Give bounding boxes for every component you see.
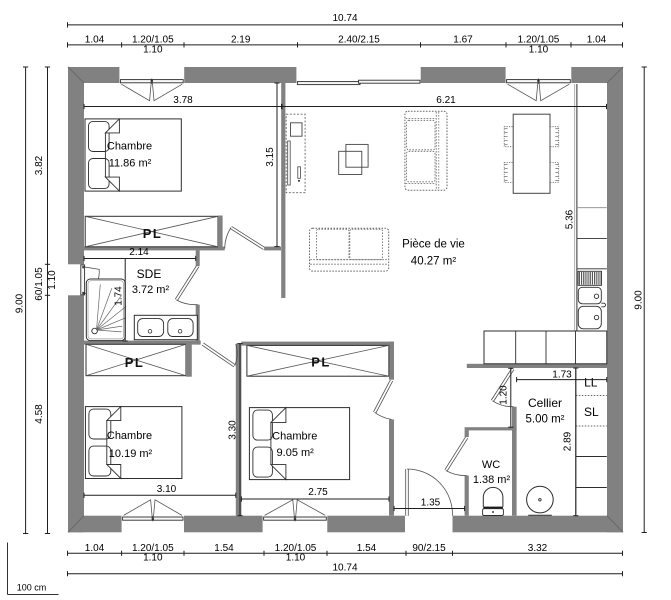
svg-text:2.89: 2.89 <box>563 431 574 451</box>
svg-text:3.82: 3.82 <box>34 155 45 175</box>
svg-text:1.10: 1.10 <box>143 44 163 55</box>
svg-text:4.58: 4.58 <box>34 404 45 424</box>
svg-text:1.54: 1.54 <box>214 543 234 554</box>
svg-text:2.14: 2.14 <box>129 247 149 258</box>
svg-text:1.74: 1.74 <box>113 286 124 306</box>
svg-text:1.20: 1.20 <box>499 385 510 405</box>
svg-text:6.21: 6.21 <box>436 95 456 106</box>
svg-text:100 cm: 100 cm <box>17 583 47 593</box>
svg-text:1.04: 1.04 <box>85 35 105 46</box>
svg-text:Chambre: Chambre <box>107 141 152 153</box>
svg-text:Cellier: Cellier <box>528 396 562 410</box>
svg-text:11.86 m²: 11.86 m² <box>109 157 152 169</box>
svg-text:5.36: 5.36 <box>565 209 576 229</box>
svg-text:1.04: 1.04 <box>587 35 607 46</box>
svg-text:60/1.05: 60/1.05 <box>34 267 45 301</box>
svg-text:1.10: 1.10 <box>47 270 58 290</box>
svg-text:Chambre: Chambre <box>272 431 317 443</box>
svg-text:2.40/2.15: 2.40/2.15 <box>338 35 380 46</box>
svg-text:LL: LL <box>584 375 598 389</box>
svg-text:9.00: 9.00 <box>15 293 26 313</box>
svg-text:1.10: 1.10 <box>286 553 306 564</box>
svg-text:10.74: 10.74 <box>332 563 357 574</box>
svg-text:1.04: 1.04 <box>85 543 105 554</box>
svg-text:1.67: 1.67 <box>453 35 473 46</box>
svg-text:5.00 m²: 5.00 m² <box>526 414 565 426</box>
svg-text:Pièce de vie: Pièce de vie <box>402 239 465 251</box>
svg-text:2.75: 2.75 <box>308 487 328 498</box>
svg-text:1.10: 1.10 <box>143 553 163 564</box>
svg-text:10.74: 10.74 <box>332 13 357 24</box>
svg-text:SL: SL <box>584 405 599 419</box>
svg-text:3.78: 3.78 <box>173 95 193 106</box>
svg-text:PL: PL <box>311 355 331 370</box>
svg-text:2.19: 2.19 <box>231 35 251 46</box>
svg-text:1.38 m²: 1.38 m² <box>473 474 511 486</box>
svg-text:40.27 m²: 40.27 m² <box>411 256 457 268</box>
svg-text:10.19 m²: 10.19 m² <box>109 448 153 460</box>
svg-text:PL: PL <box>125 355 145 370</box>
svg-text:1.35: 1.35 <box>421 498 441 509</box>
svg-text:Chambre: Chambre <box>107 430 152 442</box>
svg-text:3.30: 3.30 <box>228 420 239 440</box>
svg-text:9.00: 9.00 <box>633 290 644 310</box>
svg-text:WC: WC <box>482 459 500 471</box>
svg-text:1.54: 1.54 <box>357 543 377 554</box>
svg-text:3.32: 3.32 <box>528 543 548 554</box>
svg-text:3.72 m²: 3.72 m² <box>132 284 170 296</box>
svg-text:3.10: 3.10 <box>157 484 177 495</box>
svg-text:3.15: 3.15 <box>265 147 276 167</box>
svg-text:PL: PL <box>143 226 163 241</box>
svg-text:1.73: 1.73 <box>552 370 572 381</box>
svg-text:90/2.15: 90/2.15 <box>412 543 446 554</box>
svg-text:9.05 m²: 9.05 m² <box>277 447 315 459</box>
svg-text:SDE: SDE <box>137 267 162 281</box>
svg-text:1.10: 1.10 <box>529 44 549 55</box>
